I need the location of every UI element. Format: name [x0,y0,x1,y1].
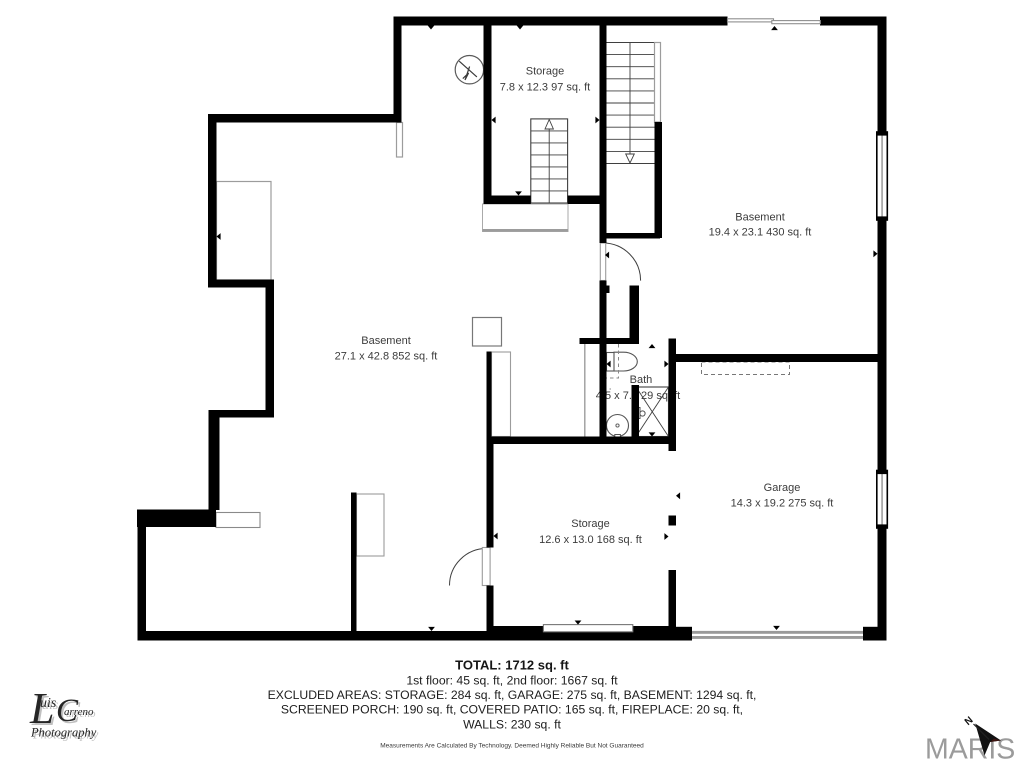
svg-text:Storage: Storage [526,66,565,78]
svg-text:Bath: Bath [630,374,653,386]
svg-text:7.8 x 12.3 97 sq. ft: 7.8 x 12.3 97 sq. ft [500,82,591,94]
svg-text:arreno: arreno [64,706,94,718]
svg-text:19.4 x 23.1 430 sq. ft: 19.4 x 23.1 430 sq. ft [709,227,812,239]
svg-text:SCREENED PORCH: 190 sq. ft, CO: SCREENED PORCH: 190 sq. ft, COVERED PATI… [281,703,743,717]
svg-text:27.1 x 42.8 852 sq. ft: 27.1 x 42.8 852 sq. ft [335,351,438,363]
svg-text:MARIS: MARIS [925,734,1015,766]
svg-text:Basement: Basement [361,335,411,347]
svg-text:Measurements Are Calculated By: Measurements Are Calculated By Technolog… [380,743,644,750]
svg-text:1st floor: 45 sq. ft, 2nd floo: 1st floor: 45 sq. ft, 2nd floor: 1667 sq… [406,674,618,688]
svg-text:Storage: Storage [571,518,610,530]
svg-text:TOTAL: 1712 sq. ft: TOTAL: 1712 sq. ft [455,658,569,673]
svg-text:WALLS: 230 sq. ft: WALLS: 230 sq. ft [463,718,561,732]
svg-text:Photography: Photography [30,726,97,740]
svg-text:12.6 x 13.0 168 sq. ft: 12.6 x 13.0 168 sq. ft [539,534,642,546]
svg-text:Basement: Basement [735,212,785,224]
svg-text:14.3 x 19.2 275 sq. ft: 14.3 x 19.2 275 sq. ft [731,498,834,510]
svg-text:uis: uis [40,696,57,711]
svg-text:Garage: Garage [764,482,801,494]
svg-text:EXCLUDED AREAS: STORAGE: 284 s: EXCLUDED AREAS: STORAGE: 284 sq. ft, GAR… [268,688,757,702]
